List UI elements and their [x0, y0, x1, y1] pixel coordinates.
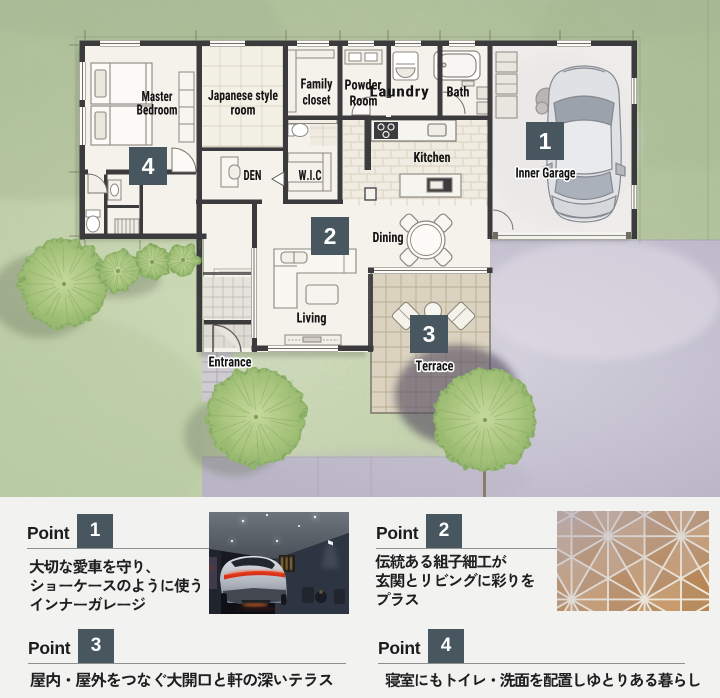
svg-text:3: 3	[423, 321, 436, 347]
svg-text:2: 2	[324, 223, 337, 249]
svg-text:1: 1	[539, 128, 552, 154]
svg-text:4: 4	[142, 153, 155, 179]
